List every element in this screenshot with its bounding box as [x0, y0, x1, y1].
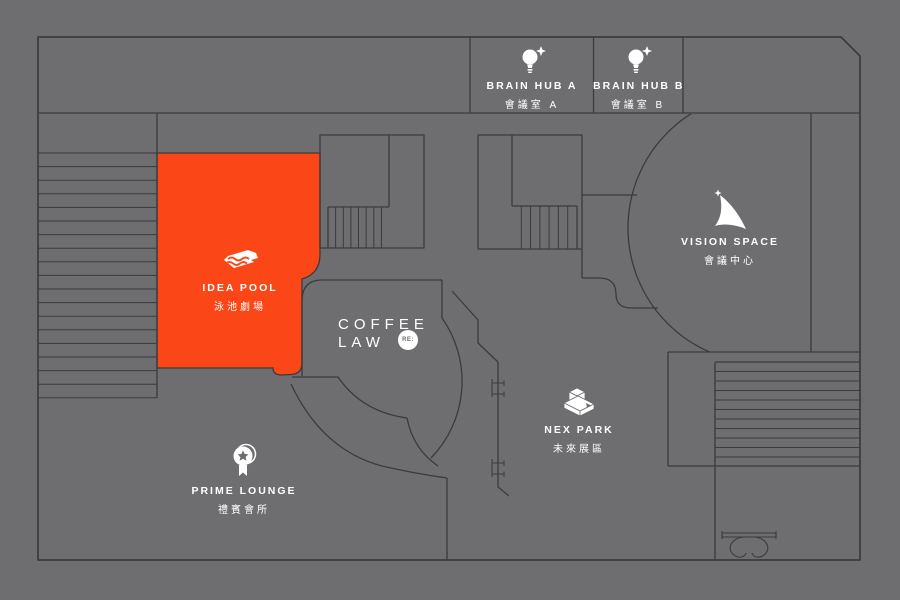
beacon-swoosh-icon	[707, 188, 753, 232]
re-badge-icon: RE:	[398, 330, 418, 350]
room-name: VISION SPACE	[650, 236, 810, 248]
wave-stage-icon	[218, 246, 262, 278]
room-name-zh: 禮賓會所	[174, 501, 314, 516]
room-nex-park[interactable]: NEX PARK 未來展區	[509, 386, 649, 455]
room-coffee-law[interactable]: COFFEE LAW RE:	[338, 316, 429, 352]
medal-ribbon-icon	[228, 443, 260, 481]
room-brain-hub-b[interactable]: BRAIN HUB B 會議室 B	[593, 44, 683, 111]
room-name: IDEA POOL	[170, 282, 310, 294]
re-badge-text: RE:	[402, 337, 414, 343]
room-name-zh: 會議中心	[650, 252, 810, 267]
room-name-zh: 會議室 B	[593, 96, 683, 111]
lightbulb-sparkle-icon	[517, 44, 547, 76]
coffee-law-wordmark-line1: COFFEE	[338, 316, 429, 334]
room-name-zh: 會議室 A	[470, 96, 594, 111]
room-name: NEX PARK	[509, 424, 649, 436]
room-name: PRIME LOUNGE	[174, 485, 314, 497]
room-brain-hub-a[interactable]: BRAIN HUB A 會議室 A	[470, 44, 594, 111]
exhibit-box-icon	[558, 386, 600, 420]
room-name: BRAIN HUB A	[470, 80, 594, 92]
map-background	[0, 0, 900, 600]
room-name-zh: 未來展區	[509, 440, 649, 455]
room-name-zh: 泳池劇場	[170, 298, 310, 313]
floor-plan-canvas	[0, 0, 900, 600]
lightbulb-sparkle-icon	[623, 44, 653, 76]
room-prime-lounge[interactable]: PRIME LOUNGE 禮賓會所	[174, 443, 314, 516]
room-idea-pool[interactable]: IDEA POOL 泳池劇場	[170, 246, 310, 313]
floor-plan: BRAIN HUB A 會議室 A BRAIN HUB B 會議室 B VISI…	[0, 0, 900, 600]
room-name: BRAIN HUB B	[593, 80, 683, 92]
room-vision-space[interactable]: VISION SPACE 會議中心	[650, 188, 810, 267]
